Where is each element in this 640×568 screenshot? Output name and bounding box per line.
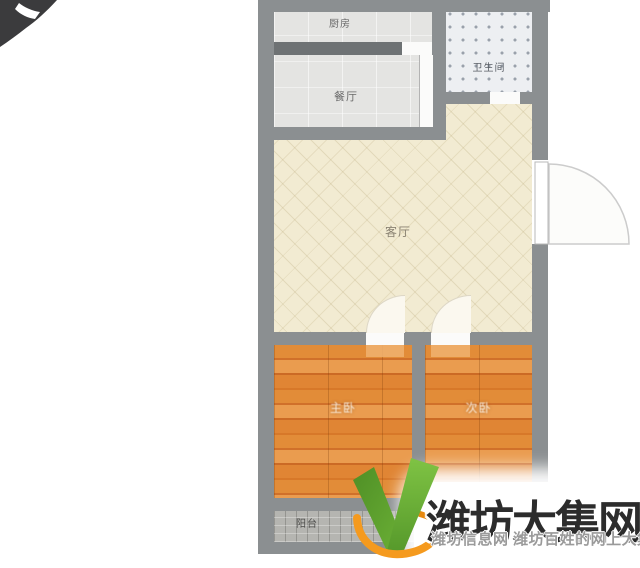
- floorplan-photo: 客厅 厨房 餐厅 卫生间 主卧 次卧 阳台: [0, 0, 640, 568]
- wall-right-lower: [532, 244, 548, 500]
- corner-logo-fragment: [0, 0, 64, 60]
- kitchen-opening: [402, 42, 432, 55]
- wall-kitchen-counter: [274, 42, 402, 55]
- wall-kitchen-bath-divider: [432, 0, 446, 140]
- wall-top: [258, 0, 550, 12]
- wall-right-upper: [532, 0, 548, 160]
- watermark-subtitle: 潍坊信息网 潍坊百姓的网上大集: [431, 528, 640, 549]
- bathroom-floor: [446, 10, 532, 92]
- bathroom-door-opening: [490, 92, 520, 104]
- bedroom-main-label: 主卧: [274, 399, 412, 416]
- bedroom-second-door-opening: [431, 332, 470, 345]
- dining-door-leaf: [419, 55, 433, 127]
- wall-left: [258, 0, 274, 554]
- bathroom-label: 卫生间: [446, 59, 532, 74]
- entry-door-swing: [532, 158, 636, 250]
- balcony-label: 阳台: [262, 515, 352, 530]
- kitchen-label: 厨房: [290, 15, 390, 30]
- living-room-label: 客厅: [348, 223, 448, 240]
- dining-room-label: 餐厅: [296, 88, 396, 104]
- bedroom-main-threshold: [366, 345, 404, 357]
- bedroom-main-door-opening: [366, 332, 404, 345]
- bedroom-second-threshold: [431, 345, 470, 357]
- wall-dining-bottom: [274, 127, 432, 140]
- bedroom-second-label: 次卧: [425, 399, 532, 416]
